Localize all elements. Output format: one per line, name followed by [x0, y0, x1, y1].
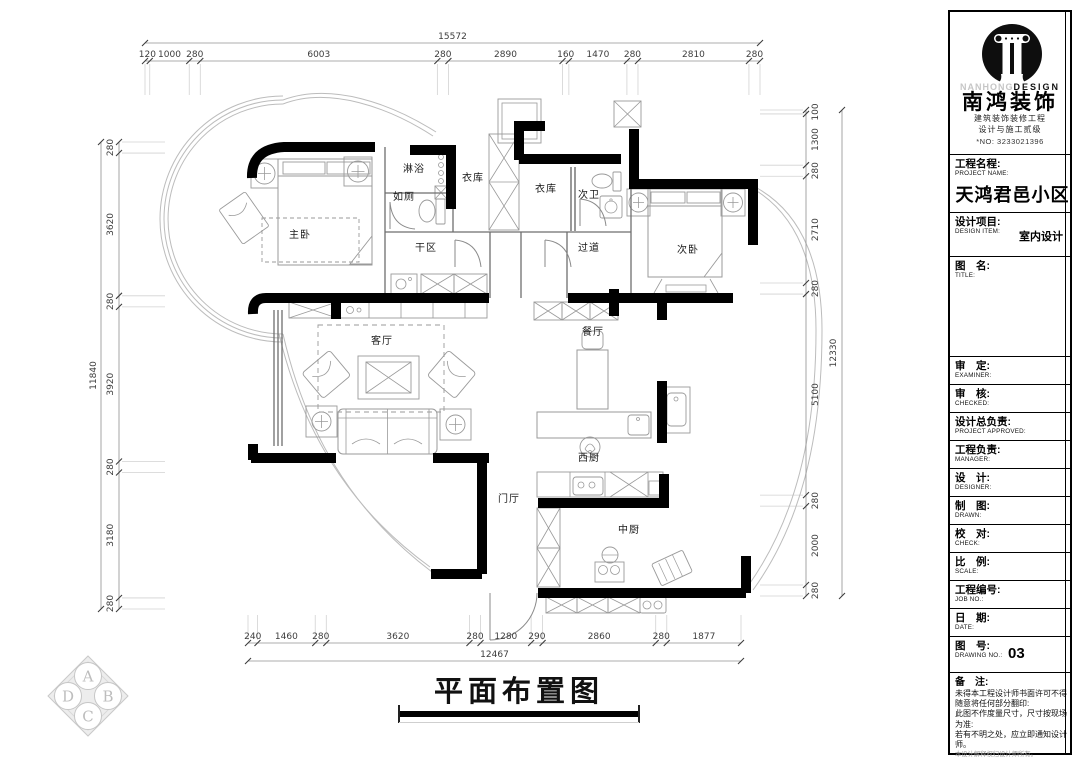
field-row-drawing-no-: 图 号:DRAWING NO.:03	[950, 636, 1070, 672]
field-row-checked-: 审 核:CHECKED:	[950, 384, 1070, 412]
dimension-label: 280	[106, 292, 116, 309]
field-label-en: DATE:	[955, 624, 1070, 631]
corner-logo-letter: C	[82, 708, 93, 726]
field-label-en: DESIGNER:	[955, 484, 1070, 491]
field-label-en: PROJECT NAME:	[955, 170, 1070, 177]
dimension-label: 12467	[480, 650, 509, 660]
room-label: 如厕	[393, 190, 415, 203]
dimension-label: 280	[106, 139, 116, 156]
dimension-label: 2000	[811, 534, 821, 557]
field-label-cn: 工程名程:	[955, 158, 1070, 170]
remark-line: 为准:	[955, 720, 1067, 730]
field-label-cn: 审 定:	[955, 360, 1070, 372]
dimension-label: 2710	[811, 218, 821, 241]
field-row-check-: 校 对:CHECK:	[950, 524, 1070, 552]
corner-logo-letter: B	[102, 688, 113, 706]
dimension-label: 11840	[89, 361, 99, 390]
dimension-label: 280	[106, 458, 116, 475]
dimension-label: 1300	[811, 128, 821, 151]
dimension-label: 1460	[275, 632, 298, 642]
dimension-label: 280	[106, 595, 116, 612]
room-label: 客厅	[371, 334, 393, 347]
room-label: 中厨	[618, 523, 640, 536]
dimension-label: 3620	[106, 213, 116, 236]
floor-plan-svg: 1201000280600328028901601470280281028015…	[0, 0, 1080, 764]
door-swings	[390, 199, 606, 640]
dimension-label: 1470	[586, 50, 609, 60]
room-label: 西厨	[578, 452, 600, 464]
dimension-label: 280	[624, 50, 641, 60]
room-label: 干区	[415, 242, 437, 254]
balcony-curves	[160, 93, 822, 590]
field-label-en: PROJECT APPROVED:	[955, 428, 1070, 435]
dimension-label: 1877	[692, 632, 715, 642]
field-label-en: JOB NO.:	[955, 596, 1070, 603]
dimension-label: 280	[312, 632, 329, 642]
brand-name-cn: 南鸿装饰	[950, 92, 1070, 114]
field-label-en: CHECK:	[955, 540, 1070, 547]
room-label: 门厅	[498, 492, 520, 505]
dimension-label: 6003	[307, 50, 330, 60]
dimension-label: 280	[186, 50, 203, 60]
field-label-cn: 设 计:	[955, 472, 1070, 484]
dimension-label: 290	[528, 632, 545, 642]
dimension-label: 3620	[386, 632, 409, 642]
remarks-section: 备 注: 未得本工程设计师书面许可不得随意将任何部分翻印:此图不作度量尺寸，尺寸…	[950, 672, 1070, 764]
room-label: 次卧	[677, 243, 699, 256]
dimension-label: 280	[746, 50, 763, 60]
field-label-cn: 图 名:	[955, 260, 1070, 272]
field-row-scale-: 比 例:SCALE:	[950, 552, 1070, 580]
dimension-label: 100	[811, 103, 821, 120]
field-label-cn: 校 对:	[955, 528, 1070, 540]
dimension-label: 2860	[588, 632, 611, 642]
dimension-label: 280	[811, 492, 821, 509]
field-label-en: TITLE:	[955, 272, 1070, 279]
field-row-drawn-: 制 图:DRAWN:	[950, 496, 1070, 524]
dimension-label: 280	[434, 50, 451, 60]
room-label: 过道	[578, 241, 600, 254]
dimension-label: 280	[653, 632, 670, 642]
remark-line: 随意将任何部分翻印:	[955, 699, 1067, 709]
dimension-label: 1000	[158, 50, 181, 60]
field-label-cn: 审 核:	[955, 388, 1070, 400]
field-label-en: DRAWN:	[955, 512, 1070, 519]
field-label-cn: 日 期:	[955, 612, 1070, 624]
remarks-lines: 未得本工程设计师书面许可不得随意将任何部分翻印:此图不作度量尺寸，尺寸按现场为准…	[955, 689, 1067, 750]
room-label: 淋浴	[403, 162, 425, 175]
room-label: 衣库	[535, 182, 557, 195]
brand-cert-line1: 建筑装饰装修工程	[950, 114, 1070, 125]
dimension-label: 3180	[106, 524, 116, 547]
field-row-manager-: 工程负责:MANAGER:	[950, 440, 1070, 468]
field-row-job-no-: 工程编号:JOB NO.:	[950, 580, 1070, 608]
brand-block: NANHONGDESIGN 南鸿装饰 建筑装饰装修工程 设计与施工贰级 *NO:…	[950, 14, 1070, 154]
room-label: 主卧	[289, 228, 311, 241]
dimension-label: 1280	[494, 632, 517, 642]
field-label-cn: 设计项目:	[955, 216, 1070, 228]
field-row-examiner-: 审 定:EXAMINER:	[950, 356, 1070, 384]
dimension-label: 280	[811, 582, 821, 599]
room-label: 衣库	[462, 171, 484, 184]
remark-line: 师。	[955, 740, 1067, 750]
drawing-title-label: 平面布置图	[399, 668, 639, 710]
field-label-cn: 工程编号:	[955, 584, 1070, 596]
field-label-en: EXAMINER:	[955, 372, 1070, 379]
corner-logo-letter: A	[82, 668, 94, 686]
remark-line: 此图不作度量尺寸，尺寸按现场	[955, 709, 1067, 719]
field-value: 天鸿君邑小区	[955, 181, 1070, 207]
field-row-title-: 图 名:TITLE:	[950, 256, 1070, 356]
field-label-cn: 设计总负责:	[955, 416, 1070, 428]
room-labels: 主卧淋浴如厕衣库衣库次卫次卧干区过道客厅餐厅西厨门厅中厨	[289, 162, 699, 536]
dimension-label: 12330	[829, 338, 839, 367]
field-label-en: MANAGER:	[955, 456, 1070, 463]
brand-cert-line2: 设计与施工贰级	[950, 125, 1070, 136]
dimension-label: 280	[466, 632, 483, 642]
drawing-title-underline-thin	[399, 722, 639, 723]
field-label-en: CHECKED:	[955, 400, 1070, 407]
dimension-label: 280	[811, 280, 821, 297]
drawing-sheet: 1201000280600328028901601470280281028015…	[0, 0, 1080, 764]
dimension-label: 5100	[811, 383, 821, 406]
brand-cert-no: *NO: 3233021396	[950, 137, 1070, 146]
dimension-label: 280	[811, 162, 821, 179]
field-label-en: SCALE:	[955, 568, 1070, 575]
corner-diamond-logo: ADBC	[45, 653, 131, 739]
drawing-title-underline	[399, 711, 639, 717]
remark-line: 未得本工程设计师书面许可不得	[955, 689, 1067, 699]
dimension-extension-lines	[122, 64, 803, 640]
remarks-title: 备 注:	[955, 677, 1067, 689]
field-row-project-approved-: 设计总负责:PROJECT APPROVED:	[950, 412, 1070, 440]
title-block-rows: 工程名程:PROJECT NAME:天鸿君邑小区设计项目:DESIGN ITEM…	[950, 154, 1070, 672]
field-label-cn: 比 例:	[955, 556, 1070, 568]
dimension-label: 2810	[682, 50, 705, 60]
title-block: NANHONGDESIGN 南鸿装饰 建筑装饰装修工程 设计与施工贰级 *NO:…	[948, 10, 1072, 755]
dimension-label: 120	[139, 50, 156, 60]
dimension-label: 3920	[106, 372, 116, 395]
field-label-cn: 制 图:	[955, 500, 1070, 512]
dimension-label: 15572	[438, 32, 467, 42]
field-value: 03	[1008, 645, 1025, 662]
field-row-design-item-: 设计项目:DESIGN ITEM:室内设计	[950, 212, 1070, 256]
corner-logo-letter: D	[62, 688, 74, 706]
field-label-cn: 工程负责:	[955, 444, 1070, 456]
field-row-project-name-: 工程名程:PROJECT NAME:天鸿君邑小区	[950, 154, 1070, 212]
field-value: 室内设计	[1019, 228, 1063, 244]
dimension-label: 240	[244, 632, 261, 642]
remark-line: 若有不明之处，应立即通知设计	[955, 730, 1067, 740]
room-label: 餐厅	[582, 325, 604, 338]
remarks-smallprint: 本设计解释权归设计师所有。	[955, 751, 1067, 759]
field-row-designer-: 设 计:DESIGNER:	[950, 468, 1070, 496]
field-row-date-: 日 期:DATE:	[950, 608, 1070, 636]
structural-walls	[251, 126, 758, 593]
room-label: 次卫	[578, 188, 600, 201]
dimension-label: 2890	[494, 50, 517, 60]
